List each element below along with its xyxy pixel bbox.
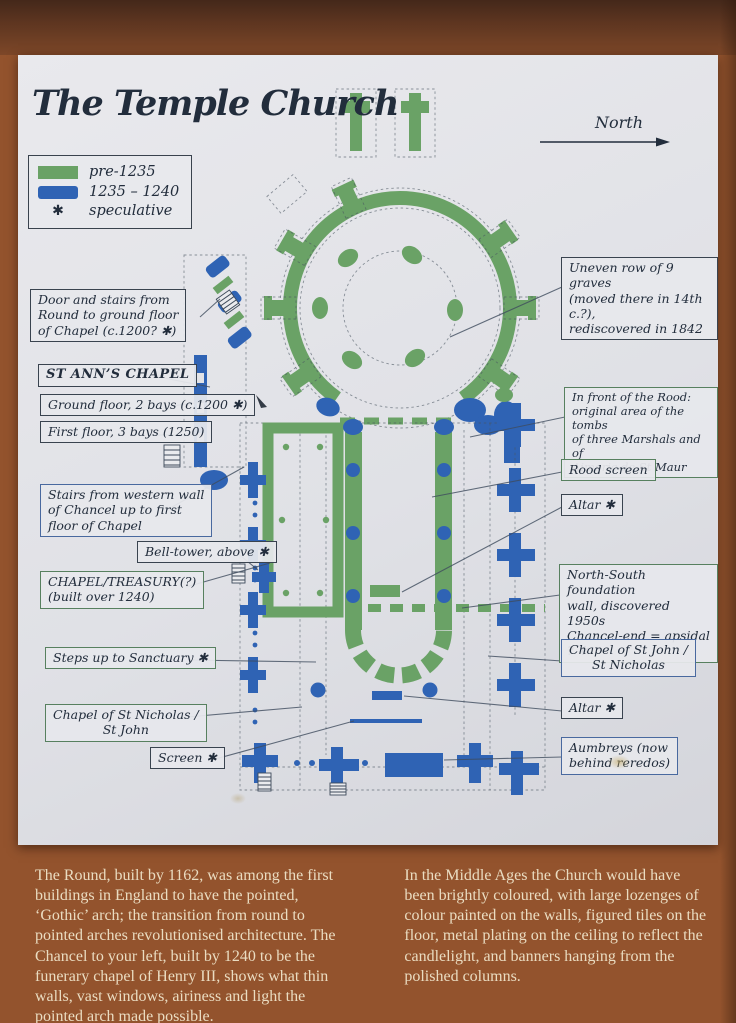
annotation-first-floor: First floor, 3 bays (1250) (40, 421, 212, 443)
annotation-altar-north: Altar ✱ (561, 494, 623, 516)
annotation-graves: Uneven row of 9 graves (moved there in 1… (561, 257, 718, 340)
annotation-chapel-st-john: Chapel of St John / St Nicholas (561, 639, 696, 677)
page-title: The Temple Church (32, 83, 398, 124)
north-arrow-icon (538, 135, 672, 147)
annotation-ground-floor: Ground floor, 2 bays (c.1200 ✱) (40, 394, 255, 416)
legend-label: pre-1235 (89, 163, 156, 183)
annotation-bell-tower: Bell-tower, above ✱ (137, 541, 277, 563)
annotation-door-stairs: Door and stairs from Round to ground flo… (30, 289, 186, 342)
legend-row-speculative: ✱ speculative (38, 202, 179, 222)
sign-photo: The Temple Church North pre-1235 1235 – … (0, 0, 736, 1023)
legend: pre-1235 1235 – 1240 ✱ speculative (28, 155, 192, 229)
blue-swatch (38, 186, 78, 199)
north-label: North (566, 113, 672, 132)
annotation-st-anns-chapel: ST ANN’S CHAPEL (38, 364, 197, 387)
green-swatch (38, 166, 78, 179)
legend-row-pre-1235: pre-1235 (38, 163, 179, 183)
annotation-chapel-treasury: CHAPEL/TREASURY(?) (built over 1240) (40, 571, 204, 609)
legend-row-1235-1240: 1235 – 1240 (38, 183, 179, 203)
annotation-altar-south: Altar ✱ (561, 697, 623, 719)
annotation-rood-screen: Rood screen (561, 459, 656, 481)
annotation-aumbreys: Aumbreys (now behind reredos) (561, 737, 678, 775)
footer: The Round, built by 1162, was among the … (0, 845, 736, 1023)
chancel-plan (232, 403, 545, 795)
footer-paragraph-left: The Round, built by 1162, was among the … (35, 866, 340, 1023)
asterisk-icon: ✱ (38, 205, 78, 218)
panel: The Temple Church North pre-1235 1235 – … (18, 55, 718, 845)
round-plan (261, 89, 539, 463)
annotation-steps-sanctuary: Steps up to Sanctuary ✱ (45, 647, 216, 669)
footer-paragraph-right: In the Middle Ages the Church would have… (404, 866, 709, 1023)
annotation-stairs-western-wall: Stairs from western wall of Chancel up t… (40, 484, 212, 537)
compass: North (538, 113, 672, 151)
legend-label: 1235 – 1240 (89, 183, 179, 203)
annotation-screen: Screen ✱ (150, 747, 225, 769)
annotation-chapel-st-nicholas: Chapel of St Nicholas / St John (45, 704, 207, 742)
legend-label: speculative (89, 202, 172, 222)
